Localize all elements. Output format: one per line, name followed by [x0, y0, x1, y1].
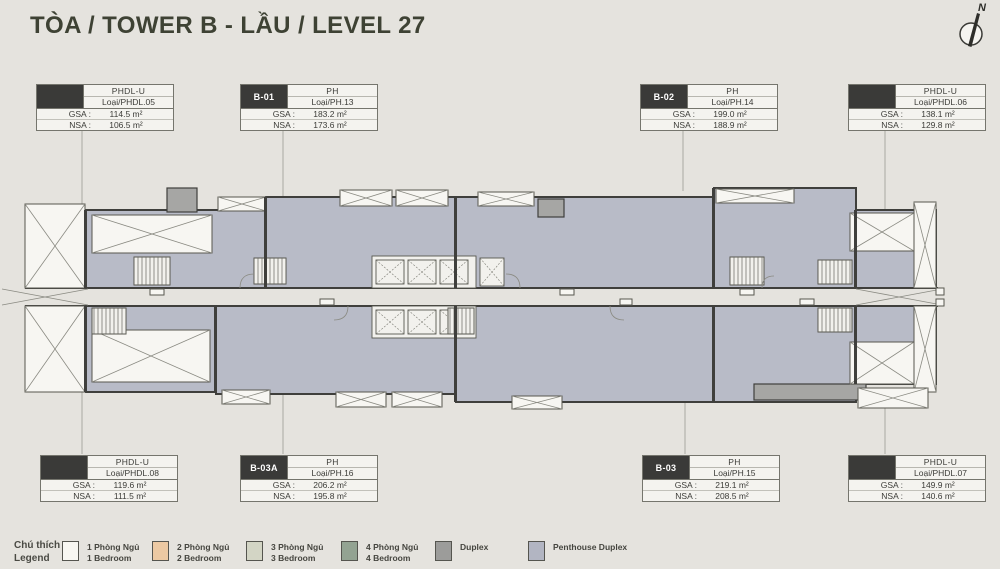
gsa-value: 149.9 m² [903, 480, 985, 490]
gsa-value: 199.0 m² [695, 109, 777, 119]
legend-label-en: 1 Bedroom [87, 553, 139, 564]
nsa-value: 129.8 m² [903, 120, 985, 130]
unit-code [849, 456, 895, 479]
legend-item-4br: 4 Phòng Ngủ4 Bedroom [341, 541, 418, 564]
legend-label-vi: 4 Phòng Ngủ [366, 542, 418, 553]
gsa-value: 119.6 m² [95, 480, 177, 490]
legend-swatch-penthouse-duplex [528, 541, 545, 561]
legend-item-2br: 2 Phòng Ngủ2 Bedroom [152, 541, 229, 564]
unit-card-phdl08: PHDL-U Loại/PHDL.08 GSA :119.6 m² NSA :1… [40, 455, 178, 502]
unit-type: PH [690, 456, 779, 468]
unit-type: PHDL-U [896, 456, 985, 468]
gsa-label: GSA : [241, 480, 295, 490]
unit-layout: Loại/PHDL.06 [896, 97, 985, 108]
unit-layout: Loại/PH.13 [288, 97, 377, 108]
legend-title-en: Legend [14, 552, 60, 565]
unit-card-b03a: B-03A PH Loại/PH.16 GSA :206.2 m² NSA :1… [240, 455, 378, 502]
legend-label-en: 3 Bedroom [271, 553, 323, 564]
service-room [167, 188, 197, 212]
nsa-label: NSA : [849, 120, 903, 130]
unit-type: PHDL-U [896, 85, 985, 97]
gsa-label: GSA : [641, 109, 695, 119]
unit-code [41, 456, 87, 479]
nsa-label: NSA : [241, 491, 295, 501]
unit-layout: Loại/PH.15 [690, 468, 779, 479]
unit-type: PH [288, 456, 377, 468]
nsa-value: 140.6 m² [903, 491, 985, 501]
unit-card-phdl05: PHDL-U Loại/PHDL.05 GSA :114.5 m² NSA :1… [36, 84, 174, 131]
legend-swatch-duplex [435, 541, 452, 561]
unit-card-b02: B-02 PH Loại/PH.14 GSA :199.0 m² NSA :18… [640, 84, 778, 131]
unit-code [849, 85, 895, 108]
gsa-value: 219.1 m² [697, 480, 779, 490]
legend-label-vi: 1 Phòng Ngủ [87, 542, 139, 553]
legend-label-vi: Penthouse Duplex [553, 542, 627, 553]
unit-type: PH [288, 85, 377, 97]
nsa-label: NSA : [37, 120, 91, 130]
legend-swatch-1br [62, 541, 79, 561]
unit-code [37, 85, 83, 108]
nsa-value: 195.8 m² [295, 491, 377, 501]
nsa-value: 173.6 m² [295, 120, 377, 130]
unit-type: PHDL-U [84, 85, 173, 97]
gsa-value: 206.2 m² [295, 480, 377, 490]
gsa-label: GSA : [849, 480, 903, 490]
nsa-label: NSA : [241, 120, 295, 130]
service-room [538, 199, 564, 217]
unit-type: PH [688, 85, 777, 97]
unit-card-phdl06: PHDL-U Loại/PHDL.06 GSA :138.1 m² NSA :1… [848, 84, 986, 131]
gsa-label: GSA : [849, 109, 903, 119]
compass-icon [954, 2, 998, 56]
nsa-label: NSA : [641, 120, 695, 130]
unit-code: B-03 [643, 456, 689, 479]
legend-swatch-3br [246, 541, 263, 561]
gsa-label: GSA : [37, 109, 91, 119]
legend-label-en: 2 Bedroom [177, 553, 229, 564]
nsa-value: 106.5 m² [91, 120, 173, 130]
gsa-label: GSA : [41, 480, 95, 490]
unit-layout: Loại/PHDL.05 [84, 97, 173, 108]
nsa-value: 188.9 m² [695, 120, 777, 130]
unit-card-b03: B-03 PH Loại/PH.15 GSA :219.1 m² NSA :20… [642, 455, 780, 502]
page-title: TÒA / TOWER B - LẦU / LEVEL 27 [30, 12, 426, 40]
gsa-label: GSA : [241, 109, 295, 119]
gsa-value: 114.5 m² [91, 109, 173, 119]
legend-item-1br: 1 Phòng Ngủ1 Bedroom [62, 541, 139, 564]
legend-title-vi: Chú thích [14, 539, 60, 552]
compass: N [954, 2, 998, 56]
unit-code: B-01 [241, 85, 287, 108]
nsa-value: 111.5 m² [95, 491, 177, 501]
unit-code: B-02 [641, 85, 687, 108]
legend-title: Chú thích Legend [14, 539, 60, 565]
nsa-label: NSA : [643, 491, 697, 501]
gsa-label: GSA : [643, 480, 697, 490]
unit-layout: Loại/PH.14 [688, 97, 777, 108]
legend-label-vi: 2 Phòng Ngủ [177, 542, 229, 553]
service-room [754, 384, 866, 400]
unit-layout: Loại/PHDL.08 [88, 468, 177, 479]
unit-card-b01: B-01 PH Loại/PH.13 GSA :183.2 m² NSA :17… [240, 84, 378, 131]
legend-label-vi: 3 Phòng Ngủ [271, 542, 323, 553]
legend-label-en: 4 Bedroom [366, 553, 418, 564]
gsa-value: 183.2 m² [295, 109, 377, 119]
nsa-label: NSA : [849, 491, 903, 501]
legend-swatch-2br [152, 541, 169, 561]
legend-swatch-4br [341, 541, 358, 561]
unit-card-phdl07: PHDL-U Loại/PHDL.07 GSA :149.9 m² NSA :1… [848, 455, 986, 502]
floor-plan-page: TÒA / TOWER B - LẦU / LEVEL 27 N PHDL-U … [0, 0, 1000, 569]
unit-layout: Loại/PH.16 [288, 468, 377, 479]
unit-code: B-03A [241, 456, 287, 479]
unit-layout: Loại/PHDL.07 [896, 468, 985, 479]
legend-label-vi: Duplex [460, 542, 488, 553]
legend-item-penthouse-duplex: Penthouse Duplex [528, 541, 627, 561]
legend-item-3br: 3 Phòng Ngủ3 Bedroom [246, 541, 323, 564]
north-label: N [978, 2, 986, 14]
nsa-label: NSA : [41, 491, 95, 501]
unit-type: PHDL-U [88, 456, 177, 468]
nsa-value: 208.5 m² [697, 491, 779, 501]
gsa-value: 138.1 m² [903, 109, 985, 119]
legend-item-duplex: Duplex [435, 541, 488, 561]
